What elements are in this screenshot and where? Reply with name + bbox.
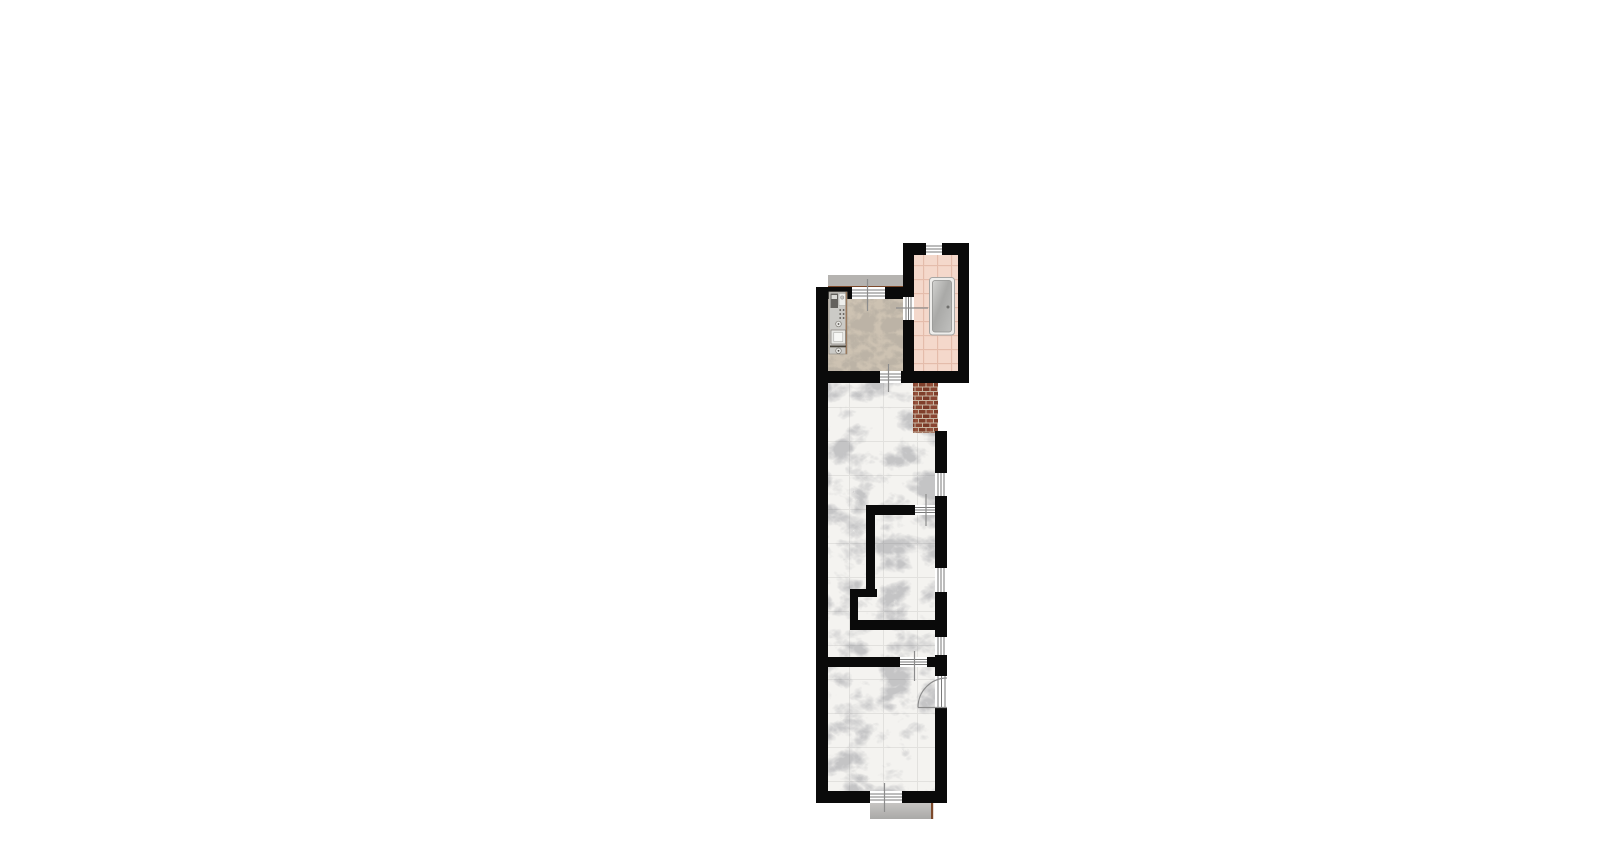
floor-plan (0, 0, 1620, 867)
wall-separator-right (927, 657, 935, 667)
cooktop-control-dot (839, 309, 841, 311)
wall-bath-bottom (903, 371, 969, 383)
faucet-upper-dot (838, 323, 840, 325)
plan-shapes (816, 243, 969, 819)
wall-innerroom-bottom (850, 620, 947, 630)
wall-innerroom-left (866, 505, 875, 597)
cooktop-control-dot (839, 313, 841, 315)
faucet-lower-dot (838, 350, 840, 352)
bathtub-drain (947, 306, 950, 309)
wall-right-c (935, 592, 947, 637)
stoop (870, 803, 933, 819)
cooktop-control-dot (839, 317, 841, 319)
wall-bath-left-upper (903, 243, 914, 297)
wall-bath-right (958, 243, 969, 383)
wall-left (816, 287, 828, 803)
wall-bottom-right (902, 791, 947, 803)
cooktop-control-dot (843, 313, 845, 315)
sink-basin-inner (834, 333, 843, 342)
wall-kitchen-top-right (885, 287, 903, 299)
chimney-brick (913, 381, 938, 433)
stoop-edge (931, 803, 933, 819)
terrace (828, 275, 903, 287)
cooktop-control-dot (843, 317, 845, 319)
wall-right-e (935, 708, 947, 803)
wall-separator-left (816, 657, 900, 667)
cooktop-control-dot (843, 309, 845, 311)
wall-bottom-left (816, 791, 870, 803)
living-floor-tile-grid (828, 383, 935, 791)
wall-right-a (935, 431, 947, 473)
canvas (0, 0, 1620, 867)
wall-kitchen-bottom-left (816, 371, 880, 383)
wall-right-d (935, 655, 947, 676)
oven-box (839, 294, 846, 306)
fridge-slot (832, 295, 838, 299)
wall-right-b (935, 496, 947, 568)
counter-dark-strip (830, 346, 846, 348)
oven-knob (841, 296, 844, 299)
